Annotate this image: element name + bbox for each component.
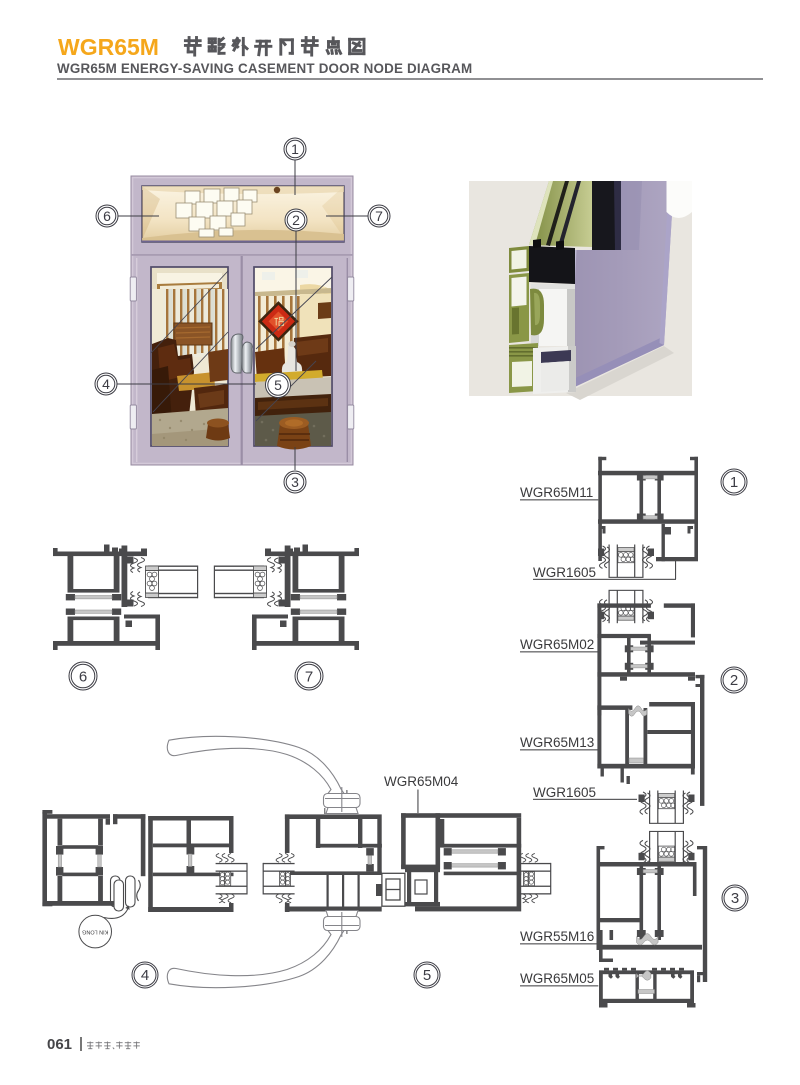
svg-text:5: 5 — [423, 967, 431, 984]
svg-text:4: 4 — [141, 967, 149, 984]
svg-text:KIN LONG: KIN LONG — [82, 929, 108, 935]
svg-text:WGR65M04: WGR65M04 — [384, 774, 459, 789]
